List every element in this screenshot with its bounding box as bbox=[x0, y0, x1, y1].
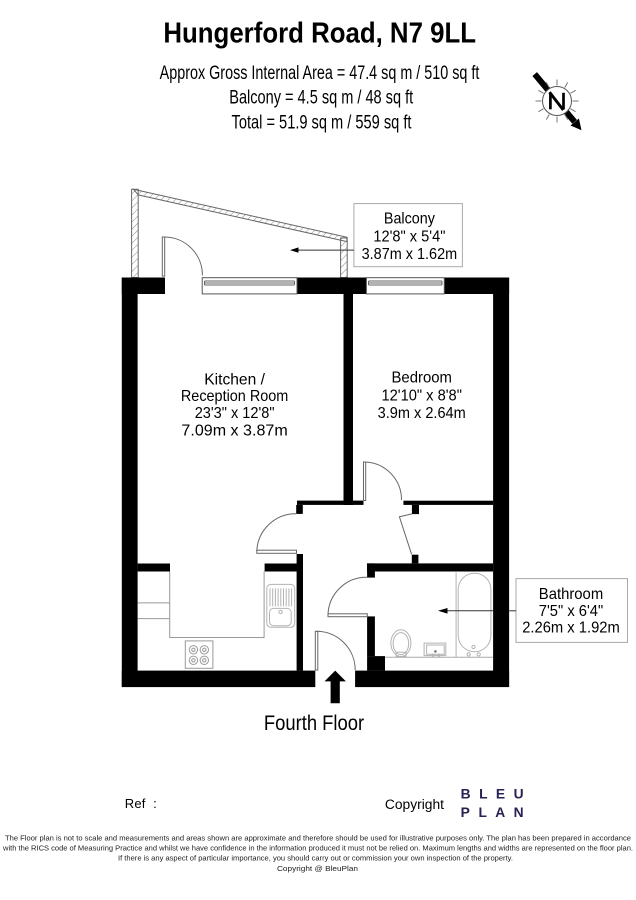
svg-text:Bedroom: Bedroom bbox=[392, 370, 452, 387]
svg-text:Fourth Floor: Fourth Floor bbox=[264, 712, 364, 735]
svg-text:7.09m x 3.87m: 7.09m x 3.87m bbox=[181, 423, 287, 440]
svg-text:Balcony: Balcony bbox=[384, 211, 435, 228]
svg-text:If there is any aspect of part: If there is any aspect of particular imp… bbox=[118, 854, 513, 863]
svg-text:Approx Gross Internal Area = 4: Approx Gross Internal Area = 47.4 sq m /… bbox=[160, 63, 480, 84]
svg-text:Kitchen /: Kitchen / bbox=[204, 371, 265, 388]
svg-text:Copyright @ BleuPlan: Copyright @ BleuPlan bbox=[277, 864, 358, 873]
svg-text:3.87m x 1.62m: 3.87m x 1.62m bbox=[362, 246, 458, 263]
svg-text:2.26m x 1.92m: 2.26m x 1.92m bbox=[522, 619, 620, 636]
svg-text:Ref :: Ref : bbox=[125, 796, 157, 811]
svg-text:7'5" x 6'4": 7'5" x 6'4" bbox=[539, 603, 603, 620]
svg-text:Hungerford Road, N7 9LL: Hungerford Road, N7 9LL bbox=[163, 17, 476, 49]
svg-text:The Floor plan is not to scale: The Floor plan is not to scale and measu… bbox=[5, 834, 631, 843]
svg-text:12'8" x 5'4": 12'8" x 5'4" bbox=[373, 228, 445, 245]
svg-text:Copyright: Copyright bbox=[385, 797, 444, 812]
svg-text:with the RICS code of Measurin: with the RICS code of Measuring Practice… bbox=[2, 844, 633, 853]
svg-text:23'3" x 12'8": 23'3" x 12'8" bbox=[195, 405, 275, 422]
svg-text:Reception Room: Reception Room bbox=[181, 388, 288, 405]
svg-text:12'10" x 8'8": 12'10" x 8'8" bbox=[381, 387, 462, 404]
svg-text:Bathroom: Bathroom bbox=[539, 586, 603, 603]
svg-text:B L E U: B L E U bbox=[461, 786, 524, 801]
svg-text:P L A N: P L A N bbox=[461, 805, 524, 820]
svg-text:Total = 51.9 sq m / 559 sq ft: Total = 51.9 sq m / 559 sq ft bbox=[232, 112, 412, 133]
svg-text:3.9m x 2.64m: 3.9m x 2.64m bbox=[378, 405, 466, 422]
svg-text:Balcony = 4.5 sq m / 48 sq ft: Balcony = 4.5 sq m / 48 sq ft bbox=[229, 88, 413, 109]
